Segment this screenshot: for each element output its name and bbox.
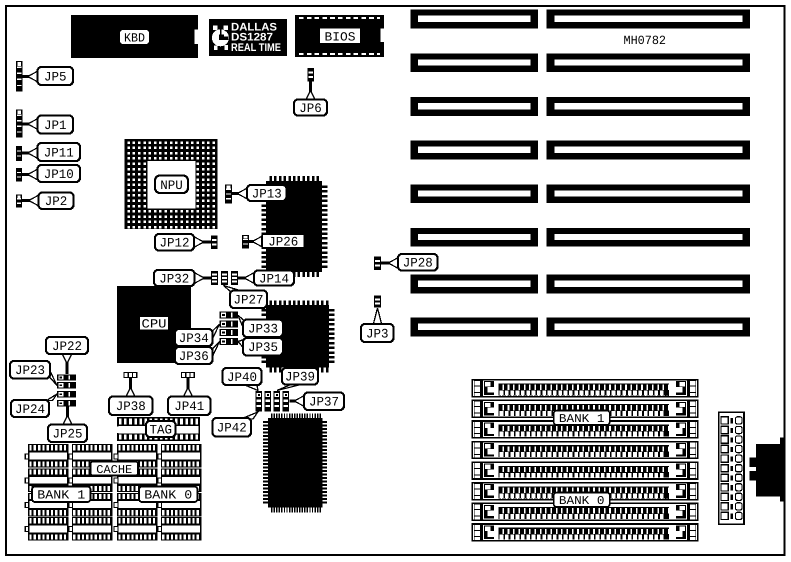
svg-text:BANK 1: BANK 1	[37, 489, 85, 503]
svg-text:JP39: JP39	[285, 370, 315, 385]
svg-text:JP23: JP23	[15, 363, 45, 378]
svg-text:TAG: TAG	[150, 422, 173, 437]
svg-text:JP35: JP35	[248, 340, 278, 355]
svg-text:JP24: JP24	[15, 402, 45, 417]
svg-text:JP13: JP13	[252, 186, 282, 201]
svg-text:JP40: JP40	[227, 370, 257, 385]
svg-text:JP2: JP2	[45, 194, 68, 209]
svg-text:CPU: CPU	[142, 318, 167, 332]
svg-text:JP3: JP3	[366, 326, 389, 341]
svg-text:JP25: JP25	[53, 427, 83, 442]
svg-text:JP42: JP42	[217, 421, 247, 436]
svg-text:KBD: KBD	[124, 32, 145, 46]
svg-text:JP38: JP38	[116, 399, 146, 414]
svg-text:JP37: JP37	[309, 395, 339, 410]
svg-text:NPU: NPU	[160, 178, 183, 193]
svg-text:JP14: JP14	[259, 271, 289, 286]
svg-text:JP34: JP34	[179, 331, 209, 346]
svg-text:JP1: JP1	[44, 118, 67, 133]
svg-text:JP32: JP32	[159, 271, 189, 286]
svg-text:BANK 1: BANK 1	[559, 412, 605, 426]
svg-text:MH0782: MH0782	[624, 34, 667, 48]
svg-text:JP26: JP26	[268, 234, 298, 249]
svg-text:CACHE: CACHE	[96, 463, 132, 477]
svg-text:REAL TIME: REAL TIME	[231, 42, 281, 54]
svg-text:JP27: JP27	[234, 293, 264, 308]
svg-text:JP12: JP12	[160, 236, 190, 251]
svg-text:JP41: JP41	[174, 399, 204, 414]
svg-text:JP33: JP33	[248, 322, 278, 337]
svg-text:BIOS: BIOS	[325, 31, 356, 45]
svg-text:JP22: JP22	[52, 339, 82, 354]
svg-text:JP6: JP6	[299, 101, 322, 116]
svg-text:JP36: JP36	[179, 349, 209, 364]
svg-text:JP10: JP10	[44, 167, 74, 182]
svg-text:JP28: JP28	[403, 256, 433, 271]
svg-text:JP5: JP5	[44, 69, 67, 84]
svg-text:JP11: JP11	[44, 145, 74, 160]
svg-text:BANK 0: BANK 0	[144, 489, 192, 503]
svg-text:BANK 0: BANK 0	[559, 494, 605, 508]
